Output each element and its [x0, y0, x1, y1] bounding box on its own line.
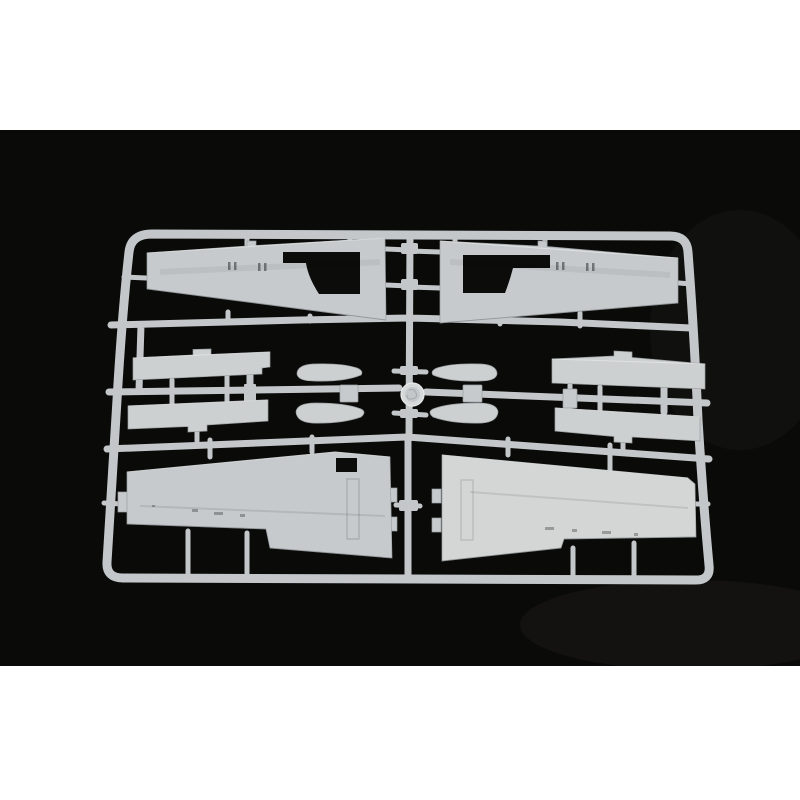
- runner-knob: [401, 243, 418, 254]
- top-white-margin: [0, 0, 800, 130]
- wing-root-tab: [432, 518, 441, 532]
- block-far-right-part: Small rectangular part - far right: [563, 389, 577, 408]
- wing-tip-tab: [118, 492, 128, 512]
- bottom-white-margin: [0, 666, 800, 800]
- runner-knob: [399, 500, 418, 511]
- runner-knob: [400, 409, 418, 418]
- block-left-part: Small rectangular part - left of centre: [340, 385, 358, 402]
- block-right-part: Small rectangular part - right of centre: [463, 385, 482, 402]
- runner-knob: [401, 279, 418, 290]
- wing-root-tab: [432, 489, 441, 503]
- center-disc-group: Round mould boss with embossed logo: [401, 383, 424, 406]
- runner-knob: [400, 366, 418, 375]
- rect-opening-lower-wing: [336, 458, 357, 472]
- photo-page: Sprue frame Inner runner bars Sprue gate…: [0, 0, 800, 800]
- product-photo: Sprue frame Inner runner bars Sprue gate…: [0, 130, 800, 666]
- sprue-photo-svg: Sprue frame Inner runner bars Sprue gate…: [0, 130, 800, 666]
